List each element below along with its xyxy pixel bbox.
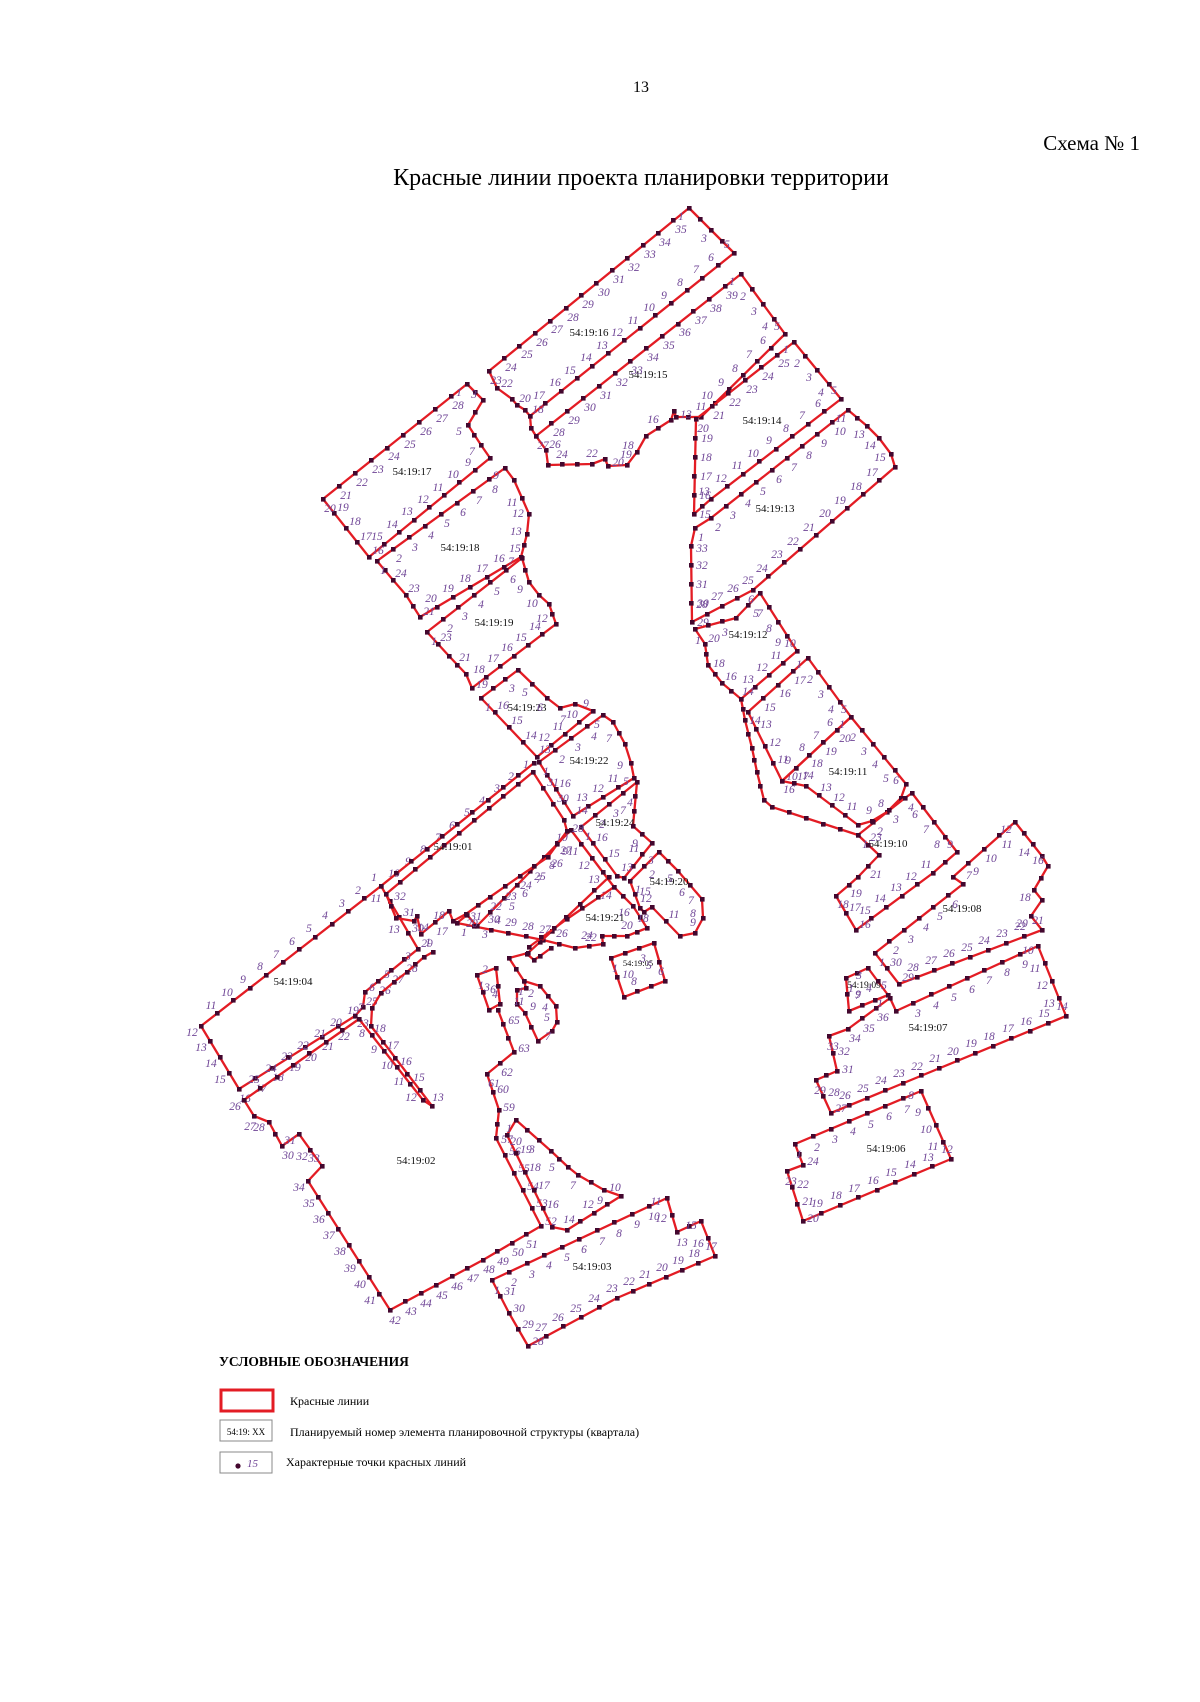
svg-text:13: 13 bbox=[576, 792, 588, 804]
svg-text:3: 3 bbox=[892, 814, 899, 826]
svg-text:4: 4 bbox=[762, 321, 768, 333]
svg-text:11: 11 bbox=[608, 773, 619, 785]
svg-text:19: 19 bbox=[476, 679, 488, 691]
svg-text:5: 5 bbox=[444, 518, 450, 530]
svg-text:37: 37 bbox=[322, 1230, 336, 1242]
svg-text:34: 34 bbox=[646, 352, 659, 364]
svg-text:17: 17 bbox=[360, 531, 373, 543]
svg-text:13: 13 bbox=[195, 1042, 207, 1054]
svg-text:15: 15 bbox=[214, 1074, 226, 1086]
svg-text:12: 12 bbox=[592, 783, 604, 795]
svg-text:22: 22 bbox=[797, 1179, 809, 1191]
svg-text:19: 19 bbox=[520, 1144, 532, 1156]
svg-text:5: 5 bbox=[306, 923, 312, 935]
svg-text:5: 5 bbox=[937, 911, 943, 923]
svg-text:36: 36 bbox=[876, 1012, 889, 1024]
svg-text:16: 16 bbox=[867, 1175, 879, 1187]
svg-text:20: 20 bbox=[612, 457, 624, 469]
svg-text:5: 5 bbox=[774, 321, 780, 333]
svg-text:54:19:13: 54:19:13 bbox=[755, 503, 795, 515]
svg-text:18: 18 bbox=[850, 481, 862, 493]
svg-text:26: 26 bbox=[536, 337, 548, 349]
svg-text:16: 16 bbox=[497, 700, 509, 712]
svg-text:8: 8 bbox=[806, 450, 812, 462]
svg-text:2: 2 bbox=[559, 754, 565, 766]
svg-text:12: 12 bbox=[417, 494, 429, 506]
svg-text:14: 14 bbox=[417, 922, 429, 934]
svg-text:6: 6 bbox=[912, 809, 918, 821]
svg-text:21: 21 bbox=[423, 606, 435, 618]
svg-text:10: 10 bbox=[526, 598, 538, 610]
svg-text:14: 14 bbox=[580, 352, 592, 364]
svg-text:УСЛОВНЫЕ ОБОЗНАЧЕНИЯ: УСЛОВНЫЕ ОБОЗНАЧЕНИЯ bbox=[219, 1354, 409, 1369]
svg-text:13: 13 bbox=[621, 862, 633, 874]
svg-text:17: 17 bbox=[387, 1040, 400, 1052]
svg-text:2: 2 bbox=[893, 945, 899, 957]
svg-text:8: 8 bbox=[257, 961, 263, 973]
svg-text:21: 21 bbox=[459, 652, 471, 664]
svg-text:5: 5 bbox=[831, 385, 837, 397]
svg-text:9: 9 bbox=[661, 290, 667, 302]
svg-text:5: 5 bbox=[594, 719, 600, 731]
svg-text:4: 4 bbox=[627, 797, 633, 809]
svg-text:54:19:16: 54:19:16 bbox=[569, 327, 609, 339]
svg-text:15: 15 bbox=[509, 543, 521, 555]
svg-text:17: 17 bbox=[476, 563, 489, 575]
svg-text:11: 11 bbox=[1002, 839, 1013, 851]
svg-text:21: 21 bbox=[1032, 915, 1044, 927]
svg-text:Характерные точки красных лини: Характерные точки красных линий bbox=[286, 1455, 467, 1469]
svg-text:1: 1 bbox=[371, 872, 377, 884]
svg-text:2: 2 bbox=[528, 988, 534, 1000]
svg-text:11: 11 bbox=[514, 996, 525, 1008]
svg-text:3: 3 bbox=[411, 542, 418, 554]
svg-text:13: 13 bbox=[633, 79, 649, 96]
svg-text:18: 18 bbox=[637, 913, 649, 925]
svg-text:14: 14 bbox=[205, 1058, 217, 1070]
svg-text:8: 8 bbox=[677, 277, 683, 289]
svg-text:5: 5 bbox=[544, 1012, 550, 1024]
svg-text:22: 22 bbox=[787, 536, 799, 548]
svg-text:9: 9 bbox=[973, 866, 979, 878]
svg-text:1: 1 bbox=[783, 344, 789, 356]
svg-text:3: 3 bbox=[831, 1134, 838, 1146]
svg-text:3: 3 bbox=[574, 742, 581, 754]
svg-text:63: 63 bbox=[518, 1043, 530, 1055]
svg-text:10: 10 bbox=[609, 1182, 621, 1194]
svg-text:20: 20 bbox=[621, 920, 633, 932]
svg-text:13: 13 bbox=[760, 719, 772, 731]
svg-text:20: 20 bbox=[947, 1046, 959, 1058]
svg-text:9: 9 bbox=[821, 438, 827, 450]
svg-text:3: 3 bbox=[860, 746, 867, 758]
svg-text:27: 27 bbox=[560, 845, 573, 857]
svg-text:31: 31 bbox=[612, 274, 625, 286]
svg-text:29: 29 bbox=[568, 415, 580, 427]
svg-text:11: 11 bbox=[847, 801, 858, 813]
svg-text:6: 6 bbox=[289, 936, 295, 948]
svg-text:42: 42 bbox=[389, 1315, 401, 1327]
svg-text:39: 39 bbox=[343, 1263, 356, 1275]
svg-text:6: 6 bbox=[952, 899, 958, 911]
svg-text:5: 5 bbox=[724, 239, 730, 251]
svg-text:15: 15 bbox=[371, 531, 383, 543]
svg-text:6: 6 bbox=[893, 775, 899, 787]
svg-text:1: 1 bbox=[585, 831, 591, 843]
svg-text:16: 16 bbox=[1032, 855, 1044, 867]
svg-text:54:19:08: 54:19:08 bbox=[942, 903, 982, 915]
svg-text:6: 6 bbox=[679, 887, 685, 899]
svg-text:14: 14 bbox=[864, 440, 876, 452]
svg-text:54:19:02: 54:19:02 bbox=[396, 1155, 435, 1167]
svg-text:4: 4 bbox=[428, 530, 434, 542]
svg-text:23: 23 bbox=[996, 928, 1008, 940]
svg-text:18: 18 bbox=[830, 1190, 842, 1202]
svg-text:10: 10 bbox=[985, 853, 997, 865]
svg-text:26: 26 bbox=[551, 858, 563, 870]
svg-text:12: 12 bbox=[512, 508, 524, 520]
svg-text:19: 19 bbox=[965, 1038, 977, 1050]
svg-text:19: 19 bbox=[347, 1005, 359, 1017]
svg-text:15: 15 bbox=[515, 632, 527, 644]
svg-text:18: 18 bbox=[459, 573, 471, 585]
svg-text:28: 28 bbox=[567, 312, 579, 324]
svg-text:15: 15 bbox=[885, 1167, 897, 1179]
svg-text:12: 12 bbox=[1036, 980, 1048, 992]
svg-text:1: 1 bbox=[862, 839, 868, 851]
svg-text:18: 18 bbox=[532, 404, 544, 416]
svg-text:1: 1 bbox=[879, 957, 885, 969]
svg-text:26: 26 bbox=[556, 928, 568, 940]
svg-text:11: 11 bbox=[651, 1196, 662, 1208]
svg-text:3: 3 bbox=[470, 389, 477, 401]
svg-text:12: 12 bbox=[611, 327, 623, 339]
svg-text:24: 24 bbox=[581, 930, 593, 942]
svg-text:6: 6 bbox=[776, 474, 782, 486]
svg-text:Планируемый номер элемента пла: Планируемый номер элемента планировочной… bbox=[290, 1425, 639, 1439]
svg-text:54:19:06: 54:19:06 bbox=[866, 1143, 906, 1155]
svg-text:6: 6 bbox=[827, 717, 833, 729]
svg-text:33: 33 bbox=[307, 1153, 320, 1165]
svg-text:9: 9 bbox=[775, 637, 781, 649]
svg-text:5: 5 bbox=[667, 873, 673, 885]
svg-text:3: 3 bbox=[612, 808, 619, 820]
svg-text:2: 2 bbox=[599, 819, 605, 831]
svg-text:Красные линии проекта планиров: Красные линии проекта планировки террито… bbox=[393, 165, 889, 191]
svg-text:30: 30 bbox=[281, 1150, 294, 1162]
svg-text:27: 27 bbox=[535, 1322, 548, 1334]
svg-text:17: 17 bbox=[849, 902, 862, 914]
svg-text:1: 1 bbox=[695, 635, 701, 647]
svg-text:6: 6 bbox=[969, 984, 975, 996]
svg-text:6: 6 bbox=[581, 1244, 587, 1256]
svg-text:31: 31 bbox=[503, 1286, 516, 1298]
svg-text:1: 1 bbox=[729, 276, 735, 288]
svg-text:46: 46 bbox=[451, 1281, 463, 1293]
svg-text:8: 8 bbox=[1004, 967, 1010, 979]
svg-text:26: 26 bbox=[727, 583, 739, 595]
svg-text:11: 11 bbox=[206, 1000, 217, 1012]
svg-text:18: 18 bbox=[1019, 892, 1031, 904]
svg-text:24: 24 bbox=[756, 563, 768, 575]
svg-text:14: 14 bbox=[576, 805, 588, 817]
svg-text:20: 20 bbox=[708, 633, 720, 645]
svg-text:23: 23 bbox=[505, 891, 517, 903]
svg-text:23: 23 bbox=[408, 583, 420, 595]
svg-text:27: 27 bbox=[925, 955, 938, 967]
svg-text:17: 17 bbox=[794, 675, 807, 687]
svg-text:4: 4 bbox=[923, 922, 929, 934]
svg-text:23: 23 bbox=[893, 1068, 905, 1080]
svg-text:19: 19 bbox=[850, 888, 862, 900]
svg-text:30: 30 bbox=[597, 287, 610, 299]
svg-text:18: 18 bbox=[700, 452, 712, 464]
svg-text:1: 1 bbox=[796, 1149, 802, 1161]
svg-text:28: 28 bbox=[522, 921, 534, 933]
svg-text:14: 14 bbox=[742, 686, 754, 698]
svg-text:20: 20 bbox=[839, 733, 851, 745]
svg-text:8: 8 bbox=[799, 742, 805, 754]
svg-text:23: 23 bbox=[281, 1051, 293, 1063]
svg-text:9: 9 bbox=[371, 1044, 377, 1056]
svg-text:2: 2 bbox=[850, 732, 856, 744]
svg-text:16: 16 bbox=[559, 778, 571, 790]
svg-text:4: 4 bbox=[591, 731, 597, 743]
svg-text:32: 32 bbox=[393, 891, 406, 903]
svg-text:10: 10 bbox=[747, 448, 759, 460]
svg-text:21: 21 bbox=[340, 490, 352, 502]
svg-text:2: 2 bbox=[814, 1142, 820, 1154]
svg-text:21: 21 bbox=[870, 869, 882, 881]
svg-text:14: 14 bbox=[874, 893, 886, 905]
svg-text:3: 3 bbox=[729, 510, 736, 522]
svg-text:40: 40 bbox=[354, 1279, 366, 1291]
svg-text:9: 9 bbox=[530, 1001, 536, 1013]
svg-text:21: 21 bbox=[802, 1196, 814, 1208]
svg-text:11: 11 bbox=[394, 1076, 405, 1088]
svg-text:54:19:22: 54:19:22 bbox=[569, 755, 608, 767]
svg-text:19: 19 bbox=[834, 495, 846, 507]
svg-text:31: 31 bbox=[546, 777, 559, 789]
svg-text:29: 29 bbox=[582, 299, 594, 311]
svg-text:9: 9 bbox=[866, 805, 872, 817]
svg-text:32: 32 bbox=[695, 560, 708, 572]
svg-text:12: 12 bbox=[578, 860, 590, 872]
svg-text:22: 22 bbox=[1014, 921, 1026, 933]
svg-text:10: 10 bbox=[643, 302, 655, 314]
svg-text:9: 9 bbox=[947, 839, 953, 851]
svg-text:31: 31 bbox=[599, 390, 612, 402]
svg-text:23: 23 bbox=[606, 1283, 618, 1295]
svg-text:22: 22 bbox=[356, 477, 368, 489]
svg-text:12: 12 bbox=[756, 662, 768, 674]
svg-text:54:19:17: 54:19:17 bbox=[392, 466, 432, 478]
svg-text:5: 5 bbox=[883, 773, 889, 785]
svg-text:16: 16 bbox=[549, 377, 561, 389]
svg-text:5: 5 bbox=[522, 687, 528, 699]
svg-text:17: 17 bbox=[866, 467, 879, 479]
svg-text:1: 1 bbox=[678, 211, 684, 223]
svg-text:3: 3 bbox=[907, 934, 914, 946]
svg-text:61: 61 bbox=[488, 1078, 500, 1090]
svg-text:4: 4 bbox=[478, 599, 484, 611]
svg-text:Схема № 1: Схема № 1 bbox=[1043, 131, 1140, 155]
svg-text:9: 9 bbox=[597, 1195, 603, 1207]
svg-text:14: 14 bbox=[749, 715, 761, 727]
svg-text:11: 11 bbox=[628, 315, 639, 327]
svg-text:44: 44 bbox=[420, 1298, 432, 1310]
svg-text:13: 13 bbox=[820, 782, 832, 794]
svg-text:34: 34 bbox=[292, 1182, 305, 1194]
svg-text:14: 14 bbox=[563, 1214, 575, 1226]
svg-text:11: 11 bbox=[1030, 963, 1041, 975]
svg-text:18: 18 bbox=[433, 910, 445, 922]
svg-text:25: 25 bbox=[404, 439, 416, 451]
svg-text:24: 24 bbox=[395, 568, 407, 580]
svg-text:12: 12 bbox=[655, 1213, 667, 1225]
svg-text:11: 11 bbox=[629, 843, 640, 855]
svg-text:34: 34 bbox=[848, 1033, 861, 1045]
svg-text:51: 51 bbox=[526, 1239, 538, 1251]
svg-text:34: 34 bbox=[658, 237, 671, 249]
svg-text:41: 41 bbox=[364, 1295, 376, 1307]
svg-text:5: 5 bbox=[881, 980, 887, 992]
svg-text:9: 9 bbox=[583, 698, 589, 710]
svg-text:4: 4 bbox=[850, 1126, 856, 1138]
svg-text:20: 20 bbox=[819, 508, 831, 520]
svg-text:6: 6 bbox=[658, 966, 664, 978]
svg-text:15: 15 bbox=[874, 452, 886, 464]
svg-text:11: 11 bbox=[371, 893, 382, 905]
svg-text:18: 18 bbox=[374, 1023, 386, 1035]
svg-text:16: 16 bbox=[493, 553, 505, 565]
svg-text:Красные линии: Красные линии bbox=[290, 1394, 370, 1408]
svg-text:16: 16 bbox=[783, 784, 795, 796]
svg-text:1: 1 bbox=[839, 719, 845, 731]
svg-text:5: 5 bbox=[841, 704, 847, 716]
svg-text:16: 16 bbox=[779, 688, 791, 700]
svg-text:48: 48 bbox=[483, 1264, 495, 1276]
svg-text:54:19:07: 54:19:07 bbox=[908, 1022, 948, 1034]
svg-text:17: 17 bbox=[533, 390, 546, 402]
svg-text:29: 29 bbox=[505, 917, 517, 929]
svg-text:8: 8 bbox=[878, 798, 884, 810]
svg-text:32: 32 bbox=[295, 1151, 308, 1163]
svg-text:4: 4 bbox=[745, 498, 751, 510]
svg-text:11: 11 bbox=[553, 721, 564, 733]
svg-text:9: 9 bbox=[634, 1219, 640, 1231]
svg-text:9: 9 bbox=[617, 760, 623, 772]
svg-text:20: 20 bbox=[330, 1017, 342, 1029]
svg-text:30: 30 bbox=[512, 1303, 525, 1315]
svg-text:14: 14 bbox=[1018, 847, 1030, 859]
svg-text:16: 16 bbox=[725, 671, 737, 683]
svg-text:25: 25 bbox=[961, 942, 973, 954]
svg-text:35: 35 bbox=[302, 1198, 315, 1210]
svg-text:20: 20 bbox=[510, 1136, 522, 1148]
svg-text:17: 17 bbox=[487, 653, 500, 665]
svg-text:20: 20 bbox=[519, 393, 531, 405]
svg-text:8: 8 bbox=[359, 1028, 365, 1040]
svg-text:54:19:14: 54:19:14 bbox=[742, 415, 782, 427]
svg-text:65: 65 bbox=[508, 1015, 520, 1027]
svg-text:3: 3 bbox=[481, 929, 488, 941]
svg-text:2: 2 bbox=[482, 964, 488, 976]
svg-text:1: 1 bbox=[456, 387, 462, 399]
svg-text:6: 6 bbox=[748, 594, 754, 606]
svg-text:5: 5 bbox=[384, 969, 390, 981]
svg-text:59: 59 bbox=[503, 1102, 515, 1114]
svg-text:2: 2 bbox=[807, 674, 813, 686]
svg-text:10: 10 bbox=[784, 638, 796, 650]
svg-text:20: 20 bbox=[324, 503, 336, 515]
svg-text:54:19:11: 54:19:11 bbox=[829, 766, 868, 778]
svg-text:54:19:18: 54:19:18 bbox=[440, 542, 480, 554]
svg-text:2: 2 bbox=[355, 885, 361, 897]
svg-text:13: 13 bbox=[742, 674, 754, 686]
svg-text:24: 24 bbox=[265, 1063, 277, 1075]
svg-text:5: 5 bbox=[951, 992, 957, 1004]
svg-text:5: 5 bbox=[456, 426, 462, 438]
svg-text:17: 17 bbox=[538, 1180, 551, 1192]
svg-text:6: 6 bbox=[460, 507, 466, 519]
svg-text:24: 24 bbox=[388, 451, 400, 463]
svg-text:32: 32 bbox=[837, 1046, 850, 1058]
svg-text:10: 10 bbox=[834, 426, 846, 438]
svg-text:12: 12 bbox=[186, 1027, 198, 1039]
svg-text:20: 20 bbox=[466, 918, 478, 930]
svg-text:8: 8 bbox=[908, 1090, 914, 1102]
svg-text:24: 24 bbox=[807, 1156, 819, 1168]
svg-text:16: 16 bbox=[859, 919, 871, 931]
svg-text:10: 10 bbox=[920, 1124, 932, 1136]
svg-text:15: 15 bbox=[511, 715, 523, 727]
svg-text:4: 4 bbox=[828, 704, 834, 716]
svg-text:22: 22 bbox=[911, 1061, 923, 1073]
svg-text:22: 22 bbox=[297, 1040, 309, 1052]
svg-text:33: 33 bbox=[643, 249, 656, 261]
svg-text:6: 6 bbox=[760, 335, 766, 347]
svg-text:12: 12 bbox=[582, 1199, 594, 1211]
svg-text:1: 1 bbox=[425, 937, 431, 949]
svg-text:2: 2 bbox=[740, 291, 746, 303]
svg-text:15: 15 bbox=[859, 905, 871, 917]
svg-text:29: 29 bbox=[902, 972, 914, 984]
svg-text:26: 26 bbox=[839, 1090, 851, 1102]
svg-text:6: 6 bbox=[537, 702, 543, 714]
svg-text:13: 13 bbox=[432, 1092, 444, 1104]
svg-text:6: 6 bbox=[490, 984, 496, 996]
svg-text:5: 5 bbox=[760, 486, 766, 498]
svg-text:17: 17 bbox=[797, 771, 810, 783]
svg-text:15: 15 bbox=[608, 848, 620, 860]
svg-text:15: 15 bbox=[564, 365, 576, 377]
svg-text:3: 3 bbox=[817, 689, 824, 701]
svg-text:37: 37 bbox=[694, 315, 708, 327]
svg-text:25: 25 bbox=[521, 349, 533, 361]
svg-text:9: 9 bbox=[855, 989, 861, 1001]
svg-text:39: 39 bbox=[725, 290, 738, 302]
svg-text:12: 12 bbox=[905, 871, 917, 883]
svg-text:25: 25 bbox=[742, 575, 754, 587]
svg-text:38: 38 bbox=[333, 1246, 346, 1258]
svg-text:25: 25 bbox=[248, 1074, 260, 1086]
svg-text:11: 11 bbox=[669, 909, 680, 921]
svg-text:24: 24 bbox=[978, 935, 990, 947]
svg-text:9: 9 bbox=[766, 435, 772, 447]
svg-text:3: 3 bbox=[855, 970, 862, 982]
svg-text:30: 30 bbox=[556, 793, 569, 805]
